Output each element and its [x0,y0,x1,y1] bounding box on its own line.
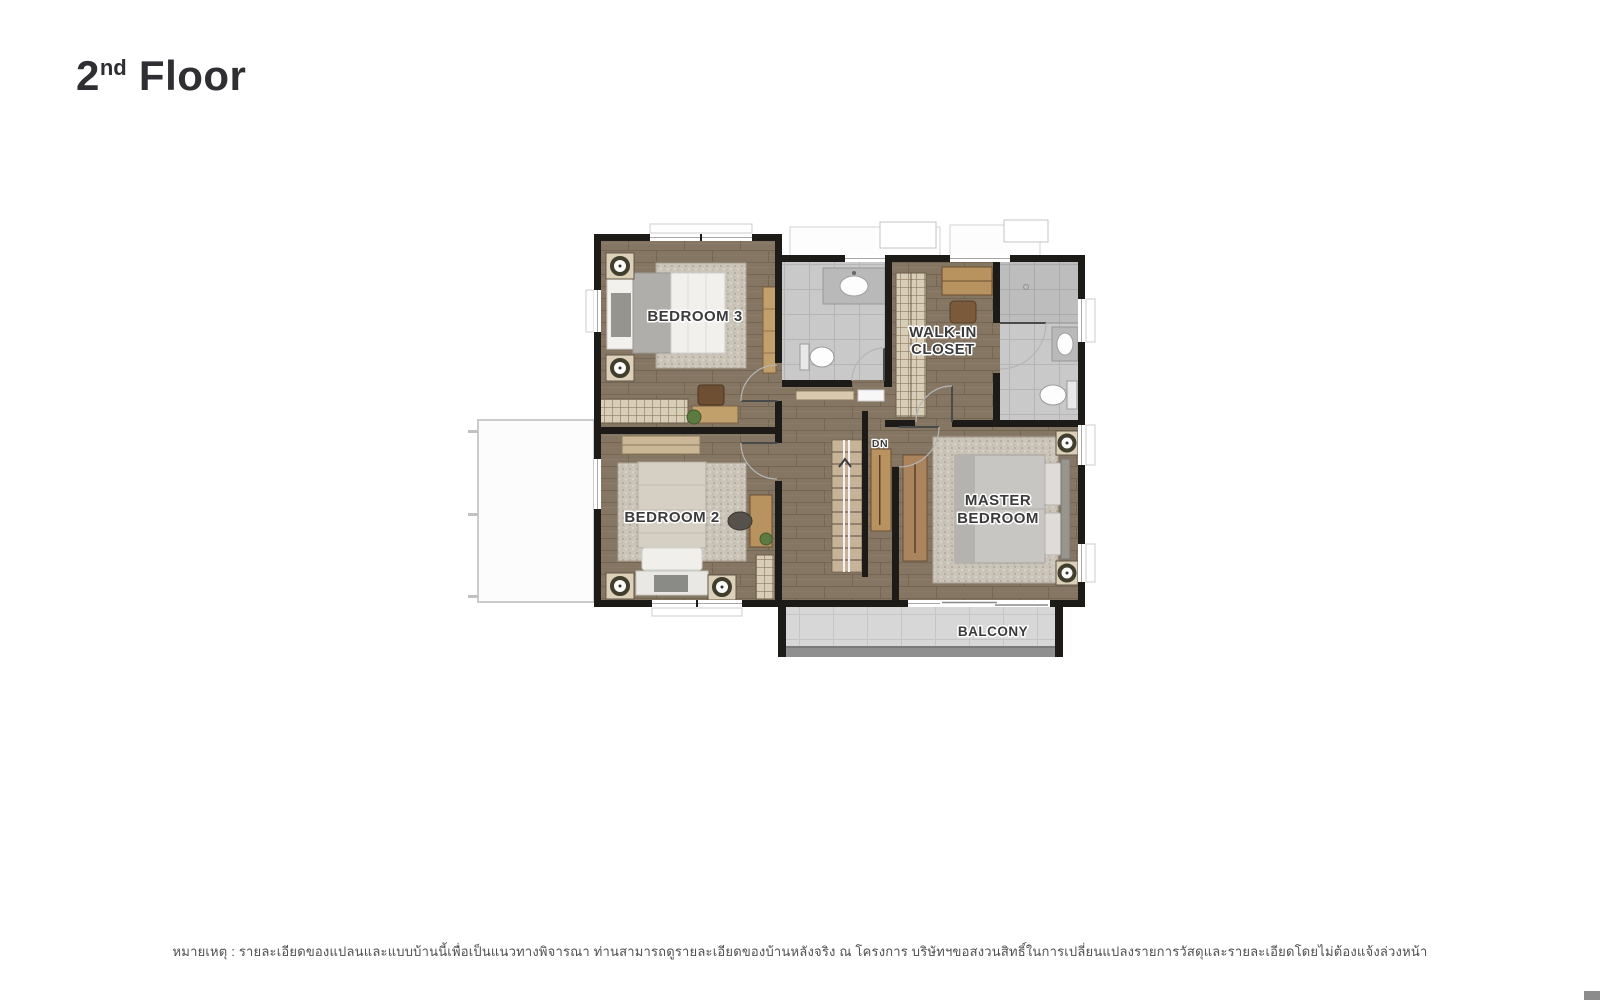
title-number: 2 [76,52,100,99]
shower-floor [1000,262,1078,323]
stair-cabinet [871,449,891,531]
hall-console [796,391,854,400]
shelf [756,555,774,599]
window [650,234,752,241]
stool [950,301,976,323]
sink-basin [1057,333,1073,355]
window-sill [1086,299,1095,342]
sink-basin [840,276,868,296]
stair-railing [848,440,850,572]
floor-plan: BEDROOM 3 BEDROOM 2 WAL [460,215,1100,675]
window [1078,425,1085,465]
roof-box [1004,220,1048,242]
balcony-label: BALCONY [958,624,1028,639]
plant [760,533,772,545]
sliding-door [940,600,1050,607]
chair [728,512,752,530]
window [594,290,601,332]
window [594,459,601,509]
bedroom3-label: BEDROOM 3 [647,308,742,325]
page-title: 2nd Floor [76,52,246,100]
stairs-dn-label: DN [872,438,888,450]
deck-tick [468,430,478,433]
roof-box [880,222,936,248]
window [845,255,885,262]
title-word: Floor [139,52,246,99]
window-sill [650,224,752,233]
corner-watermark [1584,991,1600,1000]
window [1078,299,1085,342]
window-sill [586,290,594,332]
window [908,600,940,607]
dresser [600,399,688,423]
window-sill [1086,544,1095,582]
walk-in-label-line2: CLOSET [911,341,975,358]
balcony-railing [778,646,1063,657]
hall-cabinet [858,390,884,401]
walk-in-label-line1: WALK-IN [909,324,977,341]
faucet [852,271,856,275]
window-sill [1086,425,1095,465]
master-label-line1: MASTER [965,492,1031,509]
wall-shelf [763,287,776,373]
disclaimer-text: หมายเหตุ : รายละเอียดของแปลนและแบบบ้านนี… [0,941,1600,962]
bedroom2-label: BEDROOM 2 [624,509,719,526]
side-deck-roof [478,420,594,602]
title-ordinal: nd [100,55,127,80]
deck-tick [468,513,478,516]
window [950,255,1010,262]
chair [698,385,724,405]
hall-furniture [796,390,884,401]
window [652,600,742,607]
plant [687,410,701,424]
bed [636,462,708,595]
window [1078,544,1085,582]
window-sill [652,608,742,616]
master-label-line2: BEDROOM [957,510,1039,527]
deck-tick [468,595,478,598]
